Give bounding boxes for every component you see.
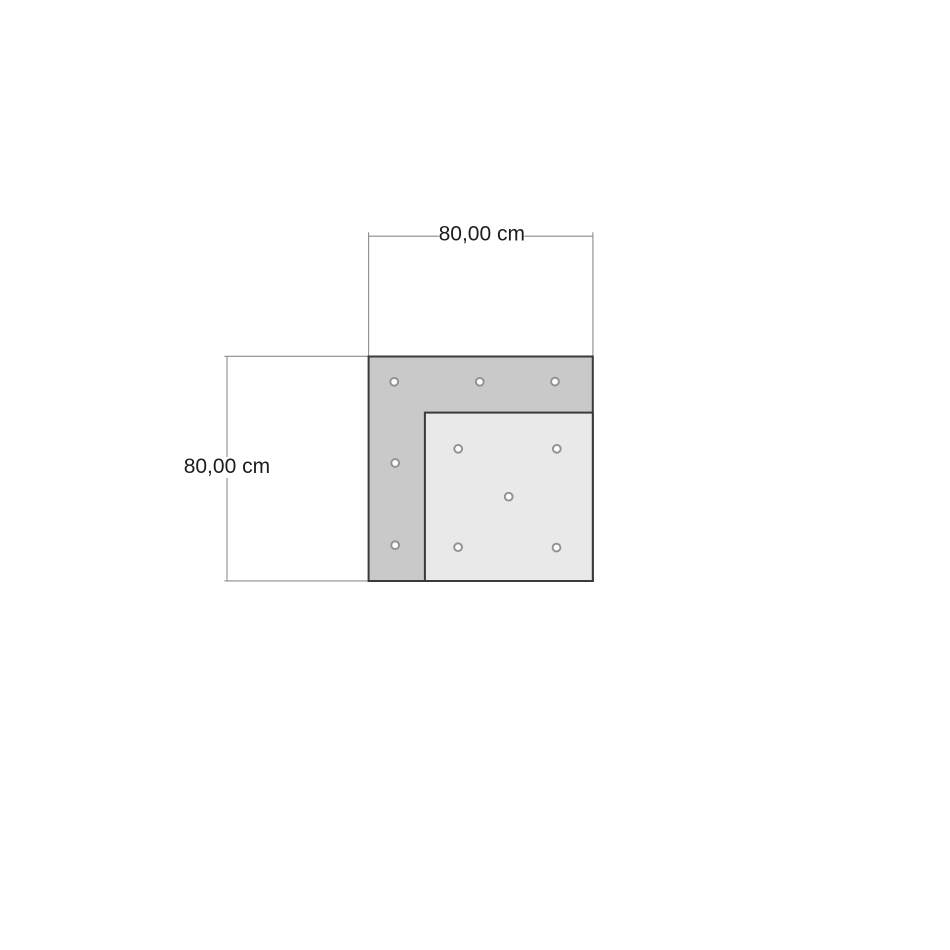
svg-text:80,00 cm: 80,00 cm [184,455,270,478]
svg-text:80,00 cm: 80,00 cm [439,222,525,245]
